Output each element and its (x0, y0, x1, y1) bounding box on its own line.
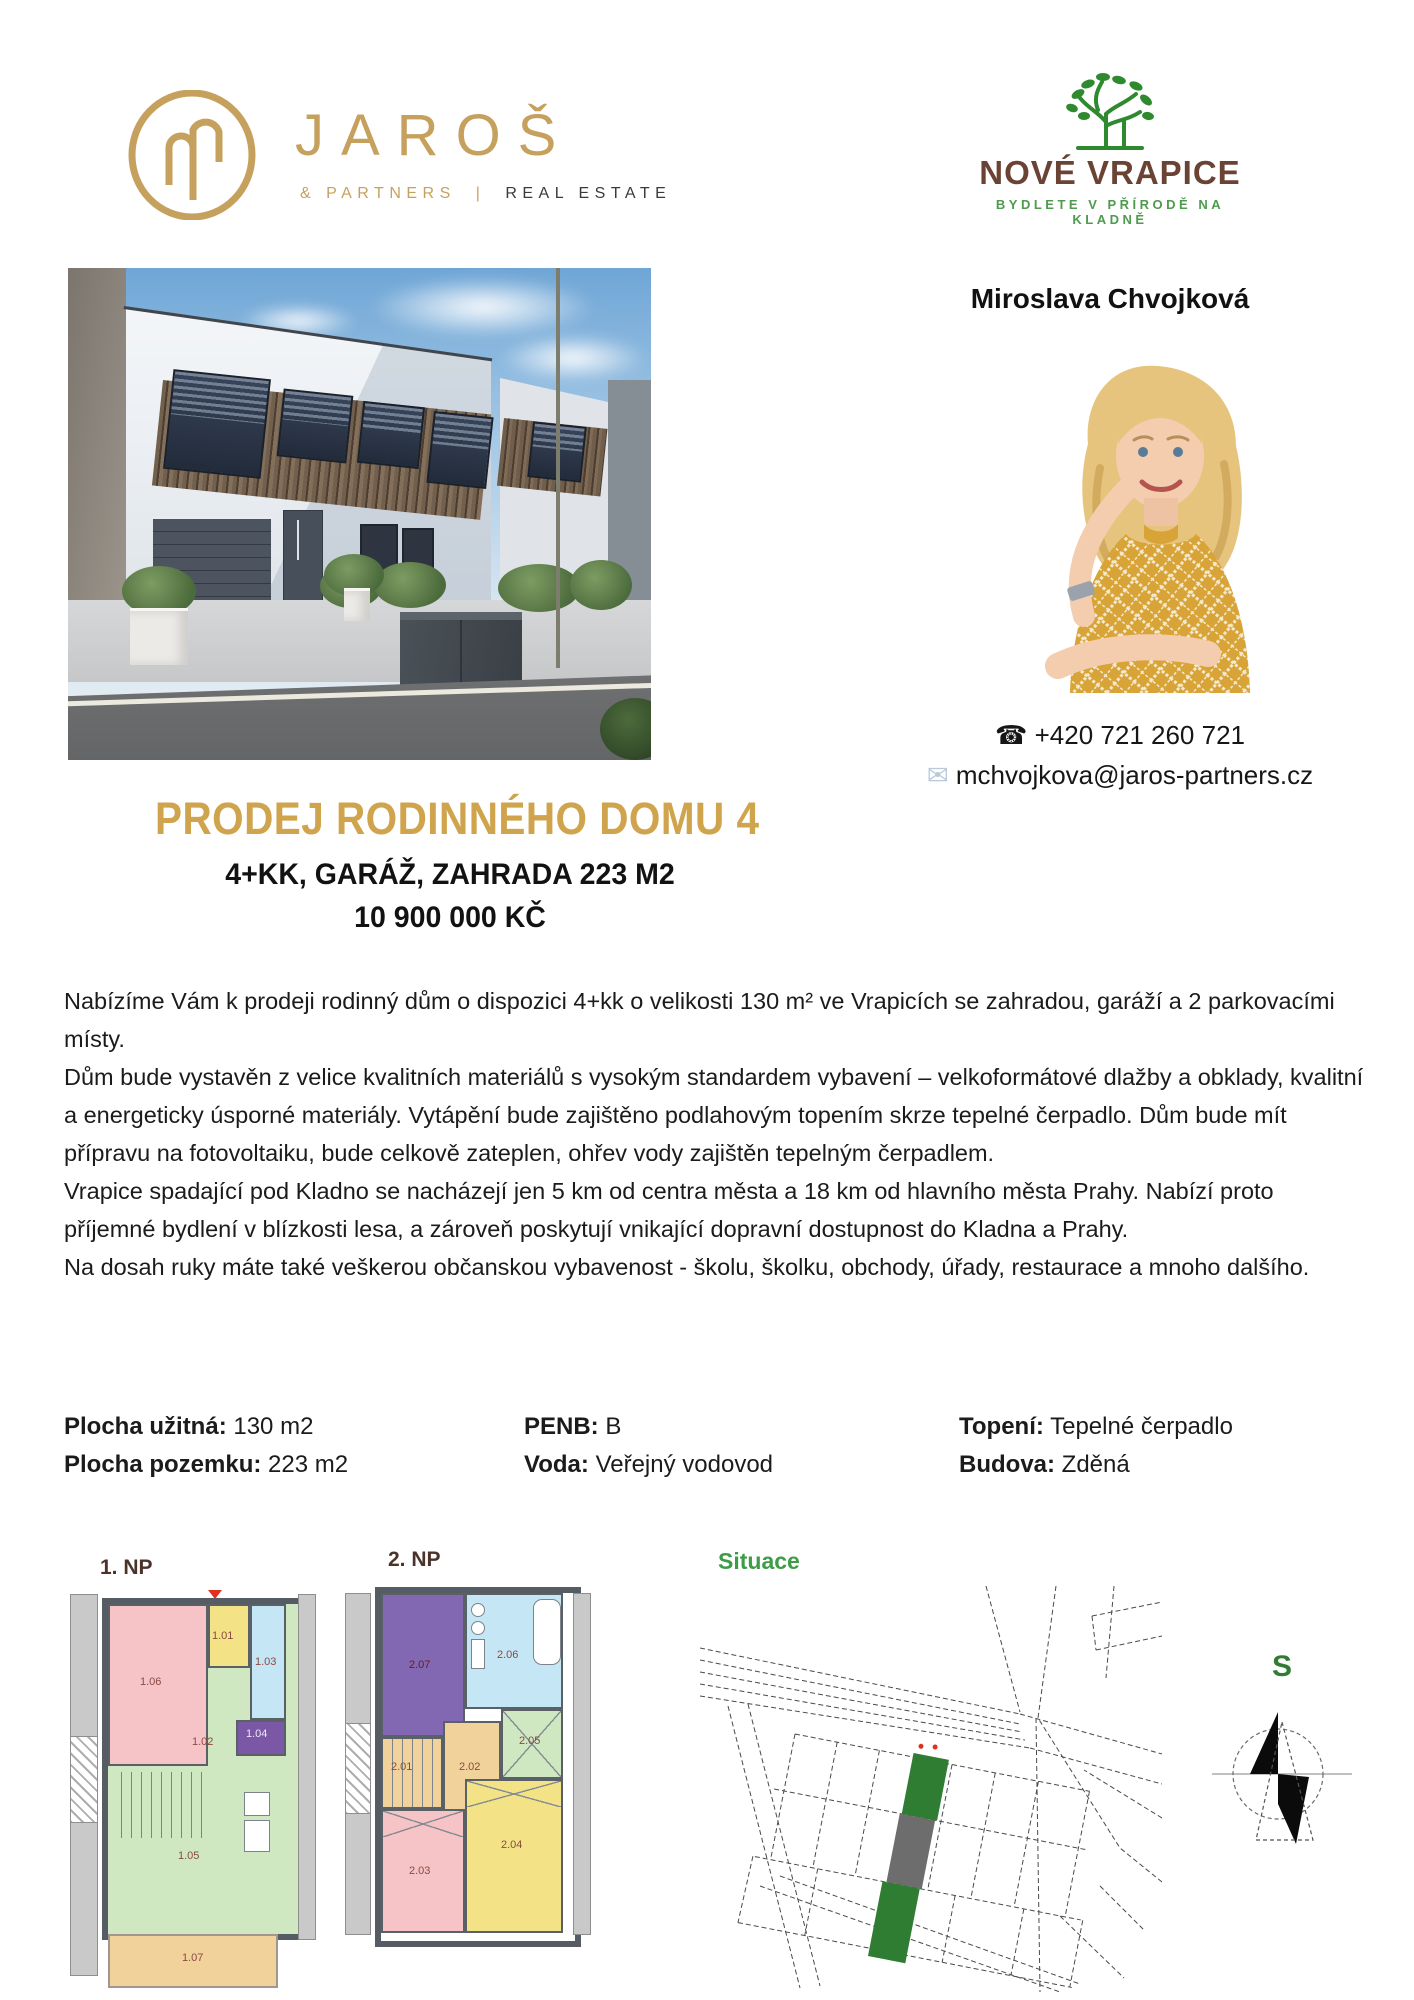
email-icon: ✉ (927, 760, 949, 790)
room-number: 2.06 (497, 1649, 518, 1661)
plot-highlight-green (868, 1881, 920, 1963)
stairs (112, 1772, 204, 1838)
agent-photo (1040, 348, 1275, 693)
plan-wall (345, 1813, 371, 1935)
room-number: 1.01 (212, 1630, 233, 1642)
nove-vrapice-tagline: BYDLETE V PŘÍRODĚ NA KLADNĚ (960, 197, 1260, 227)
room-number: 2.04 (501, 1839, 522, 1851)
jaros-logo-divider: | (476, 185, 486, 202)
tree-icon (1058, 68, 1162, 152)
room-number: 2.05 (519, 1735, 540, 1747)
listing-subtitle: 4+KK, GARÁŽ, ZAHRADA 223 M2 (184, 858, 716, 892)
detail-value: Zděná (1062, 1451, 1130, 1478)
window (163, 369, 271, 479)
agent-phone[interactable]: ☎ +420 721 260 721 (880, 720, 1360, 751)
nove-vrapice-logo: NOVÉ VRAPICE BYDLETE V PŘÍRODĚ NA KLADNĚ (960, 68, 1260, 227)
plan-ext-stairs (70, 1736, 98, 1824)
detail-label: Plocha užitná: (64, 1413, 227, 1440)
phone-icon: ☎ (995, 720, 1027, 750)
room-number: 1.07 (182, 1952, 203, 1964)
room-number: 2.03 (409, 1865, 430, 1877)
window (357, 401, 425, 469)
bush (570, 560, 632, 610)
details-column: Plocha užitná: 130 m2 Plocha pozemku: 22… (64, 1408, 348, 1484)
plan-ext-stairs (345, 1723, 371, 1815)
kitchen-fixture (244, 1792, 270, 1816)
plot-marker (932, 1744, 938, 1750)
front-door (283, 510, 323, 604)
description-paragraph: Dům bude vystavěn z velice kvalitních ma… (64, 1058, 1364, 1172)
room-number: 1.05 (178, 1850, 199, 1862)
plan-unit: 1.06 1.01 1.03 1.02 1.04 1.05 (102, 1598, 304, 1940)
sink (471, 1621, 485, 1635)
plot-highlight-gray (886, 1813, 935, 1889)
situace-label: Situace (718, 1548, 800, 1575)
description-paragraph: Na dosah ruky máte také veškerou občansk… (64, 1248, 1364, 1286)
wardrobe-mark (467, 1781, 561, 1807)
room-2-01 (381, 1737, 443, 1809)
detail-label: Plocha pozemku: (64, 1451, 261, 1478)
detail-value: Tepelné čerpadlo (1050, 1413, 1233, 1440)
compass-north-label: S (1212, 1652, 1352, 1682)
agent-name: Miroslava Chvojková (900, 283, 1320, 315)
planter (130, 608, 188, 665)
site-plan-map (700, 1586, 1162, 1992)
room-number: 1.02 (192, 1736, 213, 1748)
detail-value: Veřejný vodovod (596, 1451, 773, 1478)
details-column: Topení: Tepelné čerpadlo Budova: Zděná (959, 1408, 1233, 1484)
room-number: 2.01 (391, 1761, 412, 1773)
flower-pot (344, 588, 370, 621)
cloud-shape (368, 276, 598, 338)
room-number: 1.04 (246, 1728, 267, 1740)
nove-vrapice-wordmark: NOVÉ VRAPICE (960, 154, 1260, 192)
compass-icon (1212, 1682, 1352, 1854)
neighbor-wall (68, 268, 126, 602)
detail-label: Budova: (959, 1451, 1055, 1478)
room-number: 1.03 (255, 1656, 276, 1668)
bush (498, 564, 580, 612)
room-number: 2.07 (409, 1659, 430, 1671)
jaros-partners-label: & PARTNERS (300, 185, 456, 202)
toilet (471, 1639, 485, 1669)
agent-email[interactable]: ✉ mchvojkova@jaros-partners.cz (880, 760, 1360, 791)
jaros-logo-subline: & PARTNERS | REAL ESTATE (300, 185, 671, 203)
plan-wall (573, 1593, 591, 1935)
phone-number: +420 721 260 721 (1035, 720, 1245, 750)
compass: S (1212, 1652, 1352, 1867)
floorplan-1np: 1.06 1.01 1.03 1.02 1.04 1.05 1.07 (70, 1590, 315, 1990)
jaros-realestate-label: REAL ESTATE (505, 185, 671, 202)
email-address: mchvojkova@jaros-partners.cz (956, 760, 1313, 790)
window (277, 389, 354, 464)
floorplan-2np: 2.07 2.06 2.01 2.02 2.05 2.03 2.04 (345, 1583, 595, 1958)
plan1-label: 1. NP (100, 1556, 153, 1580)
listing-title: PRODEJ RODINNÉHO DOMU 4 (155, 793, 759, 845)
listing-price: 10 900 000 KČ (184, 901, 716, 935)
plan2-label: 2. NP (388, 1548, 441, 1572)
cloud-shape (498, 334, 648, 382)
listing-subtitle-block: 4+KK, GARÁŽ, ZAHRADA 223 M2 10 900 000 K… (184, 858, 716, 935)
description-paragraph: Nabízíme Vám k prodeji rodinný dům o dis… (64, 982, 1364, 1058)
description: Nabízíme Vám k prodeji rodinný dům o dis… (64, 982, 1364, 1286)
details-column: PENB: B Voda: Veřejný vodovod (524, 1408, 773, 1484)
room-number: 1.06 (140, 1676, 161, 1688)
plan-wall (70, 1594, 98, 1738)
detail-value: 130 m2 (233, 1413, 313, 1440)
bush (374, 562, 446, 608)
plan-wall (70, 1822, 98, 1976)
sink (471, 1603, 485, 1617)
wardrobe-mark (383, 1811, 463, 1837)
window (426, 411, 493, 489)
detail-label: PENB: (524, 1413, 599, 1440)
plot-marker (918, 1743, 924, 1749)
plot-highlight-green (902, 1753, 949, 1821)
detail-label: Voda: (524, 1451, 589, 1478)
terrace-1-07: 1.07 (108, 1934, 278, 1988)
door-handle (297, 520, 299, 560)
bathtub (533, 1599, 561, 1665)
plan-wall (298, 1594, 316, 1940)
plan-wall (345, 1593, 371, 1725)
room-number: 2.02 (459, 1761, 480, 1773)
jaros-logo-wordmark: JAROŠ (295, 102, 573, 169)
house-photo (68, 268, 651, 760)
description-paragraph: Vrapice spadající pod Kladno se nacházej… (64, 1172, 1364, 1248)
jaros-monogram-icon (127, 90, 257, 220)
flyer-page: JAROŠ & PARTNERS | REAL ESTATE (0, 0, 1414, 2000)
detail-value: B (605, 1413, 621, 1440)
detail-label: Topení: (959, 1413, 1044, 1440)
kitchen-fixture (244, 1820, 270, 1852)
detail-value: 223 m2 (268, 1451, 348, 1478)
street-lamp-pole (556, 268, 560, 668)
plan-unit: 2.07 2.06 2.01 2.02 2.05 2.03 2.04 (375, 1587, 581, 1947)
